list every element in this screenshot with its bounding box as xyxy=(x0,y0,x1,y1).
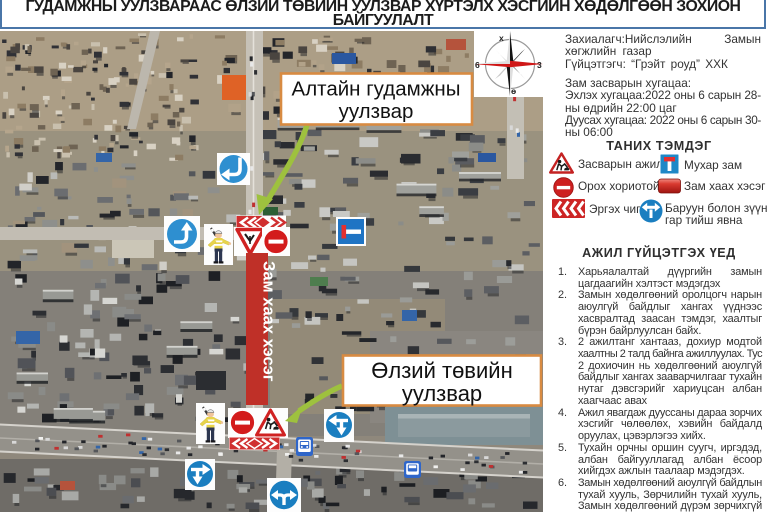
svg-text:ө: ө xyxy=(511,86,516,96)
svg-text:уулзвар: уулзвар xyxy=(402,381,482,406)
svg-text:Алтайн гудамжны: Алтайн гудамжны xyxy=(292,78,461,101)
svg-text:Өлзий төвийн: Өлзий төвийн xyxy=(371,358,512,383)
svg-text:6: 6 xyxy=(475,60,480,70)
svg-text:3: 3 xyxy=(537,60,542,70)
svg-text:x: x xyxy=(499,33,504,43)
svg-text:Зам хаах хэсэг: Зам хаах хэсэг xyxy=(260,261,278,382)
svg-text:уулзвар: уулзвар xyxy=(339,100,414,123)
